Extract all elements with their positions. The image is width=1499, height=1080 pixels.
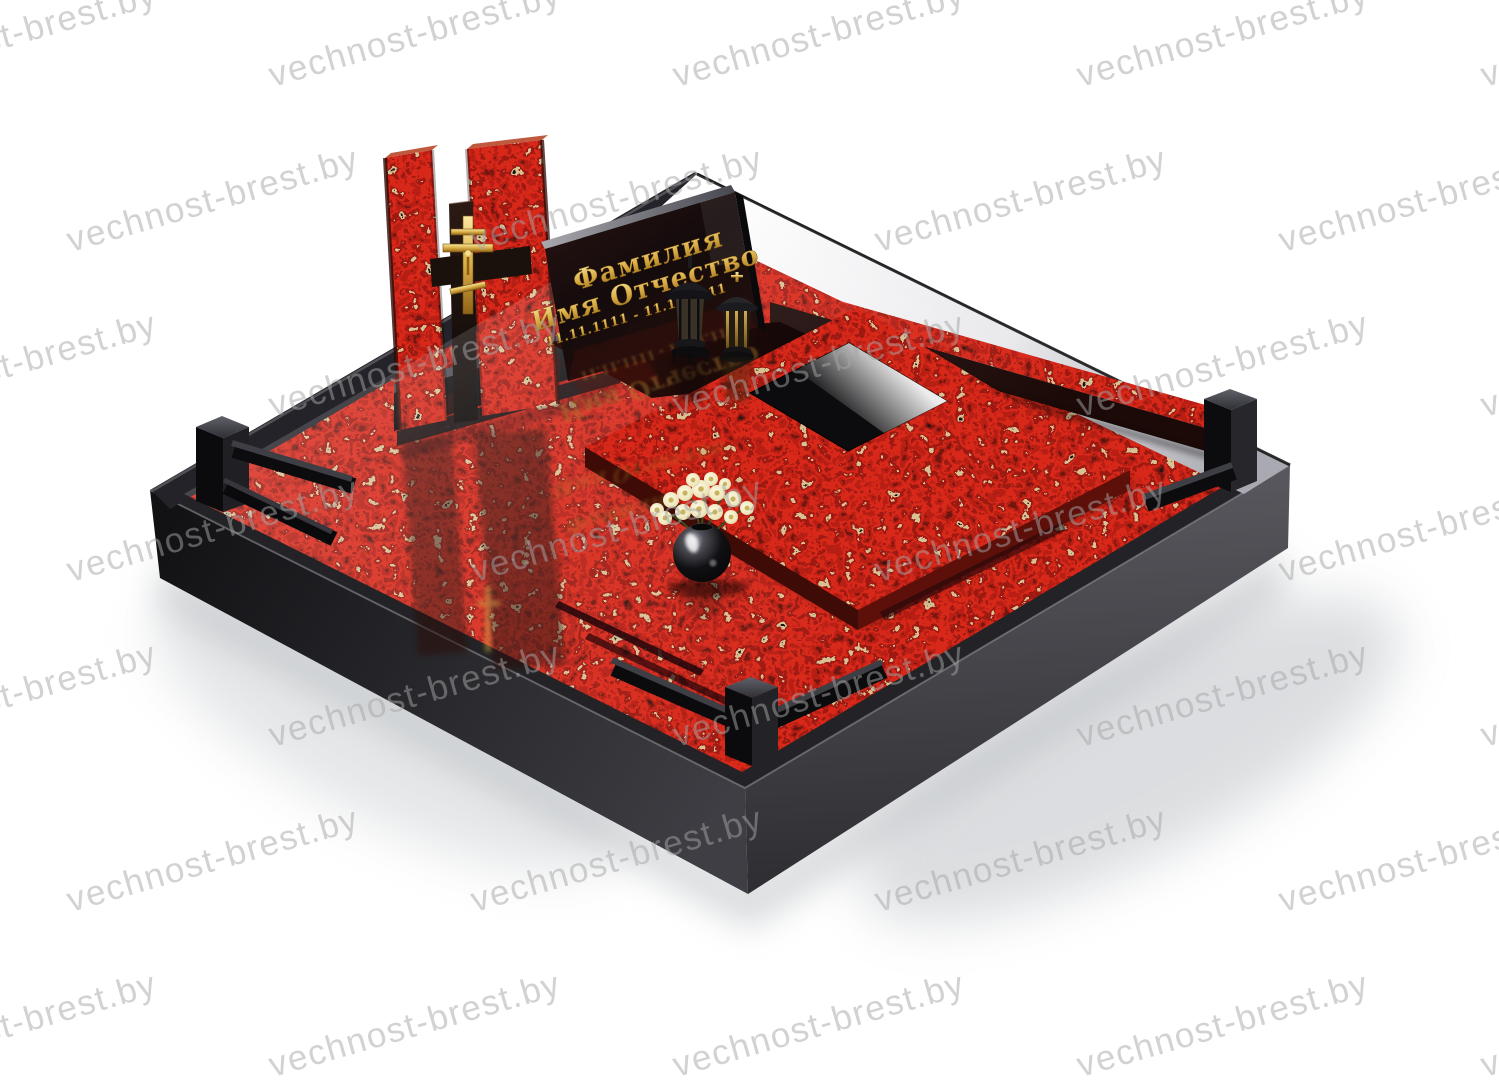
granite-memorial-render: Фамилия Имя Отчество 11.11.1111 - 11.11.… — [0, 0, 1499, 1080]
render-canvas: Фамилия Имя Отчество 11.11.1111 - 11.11.… — [0, 0, 1499, 1080]
